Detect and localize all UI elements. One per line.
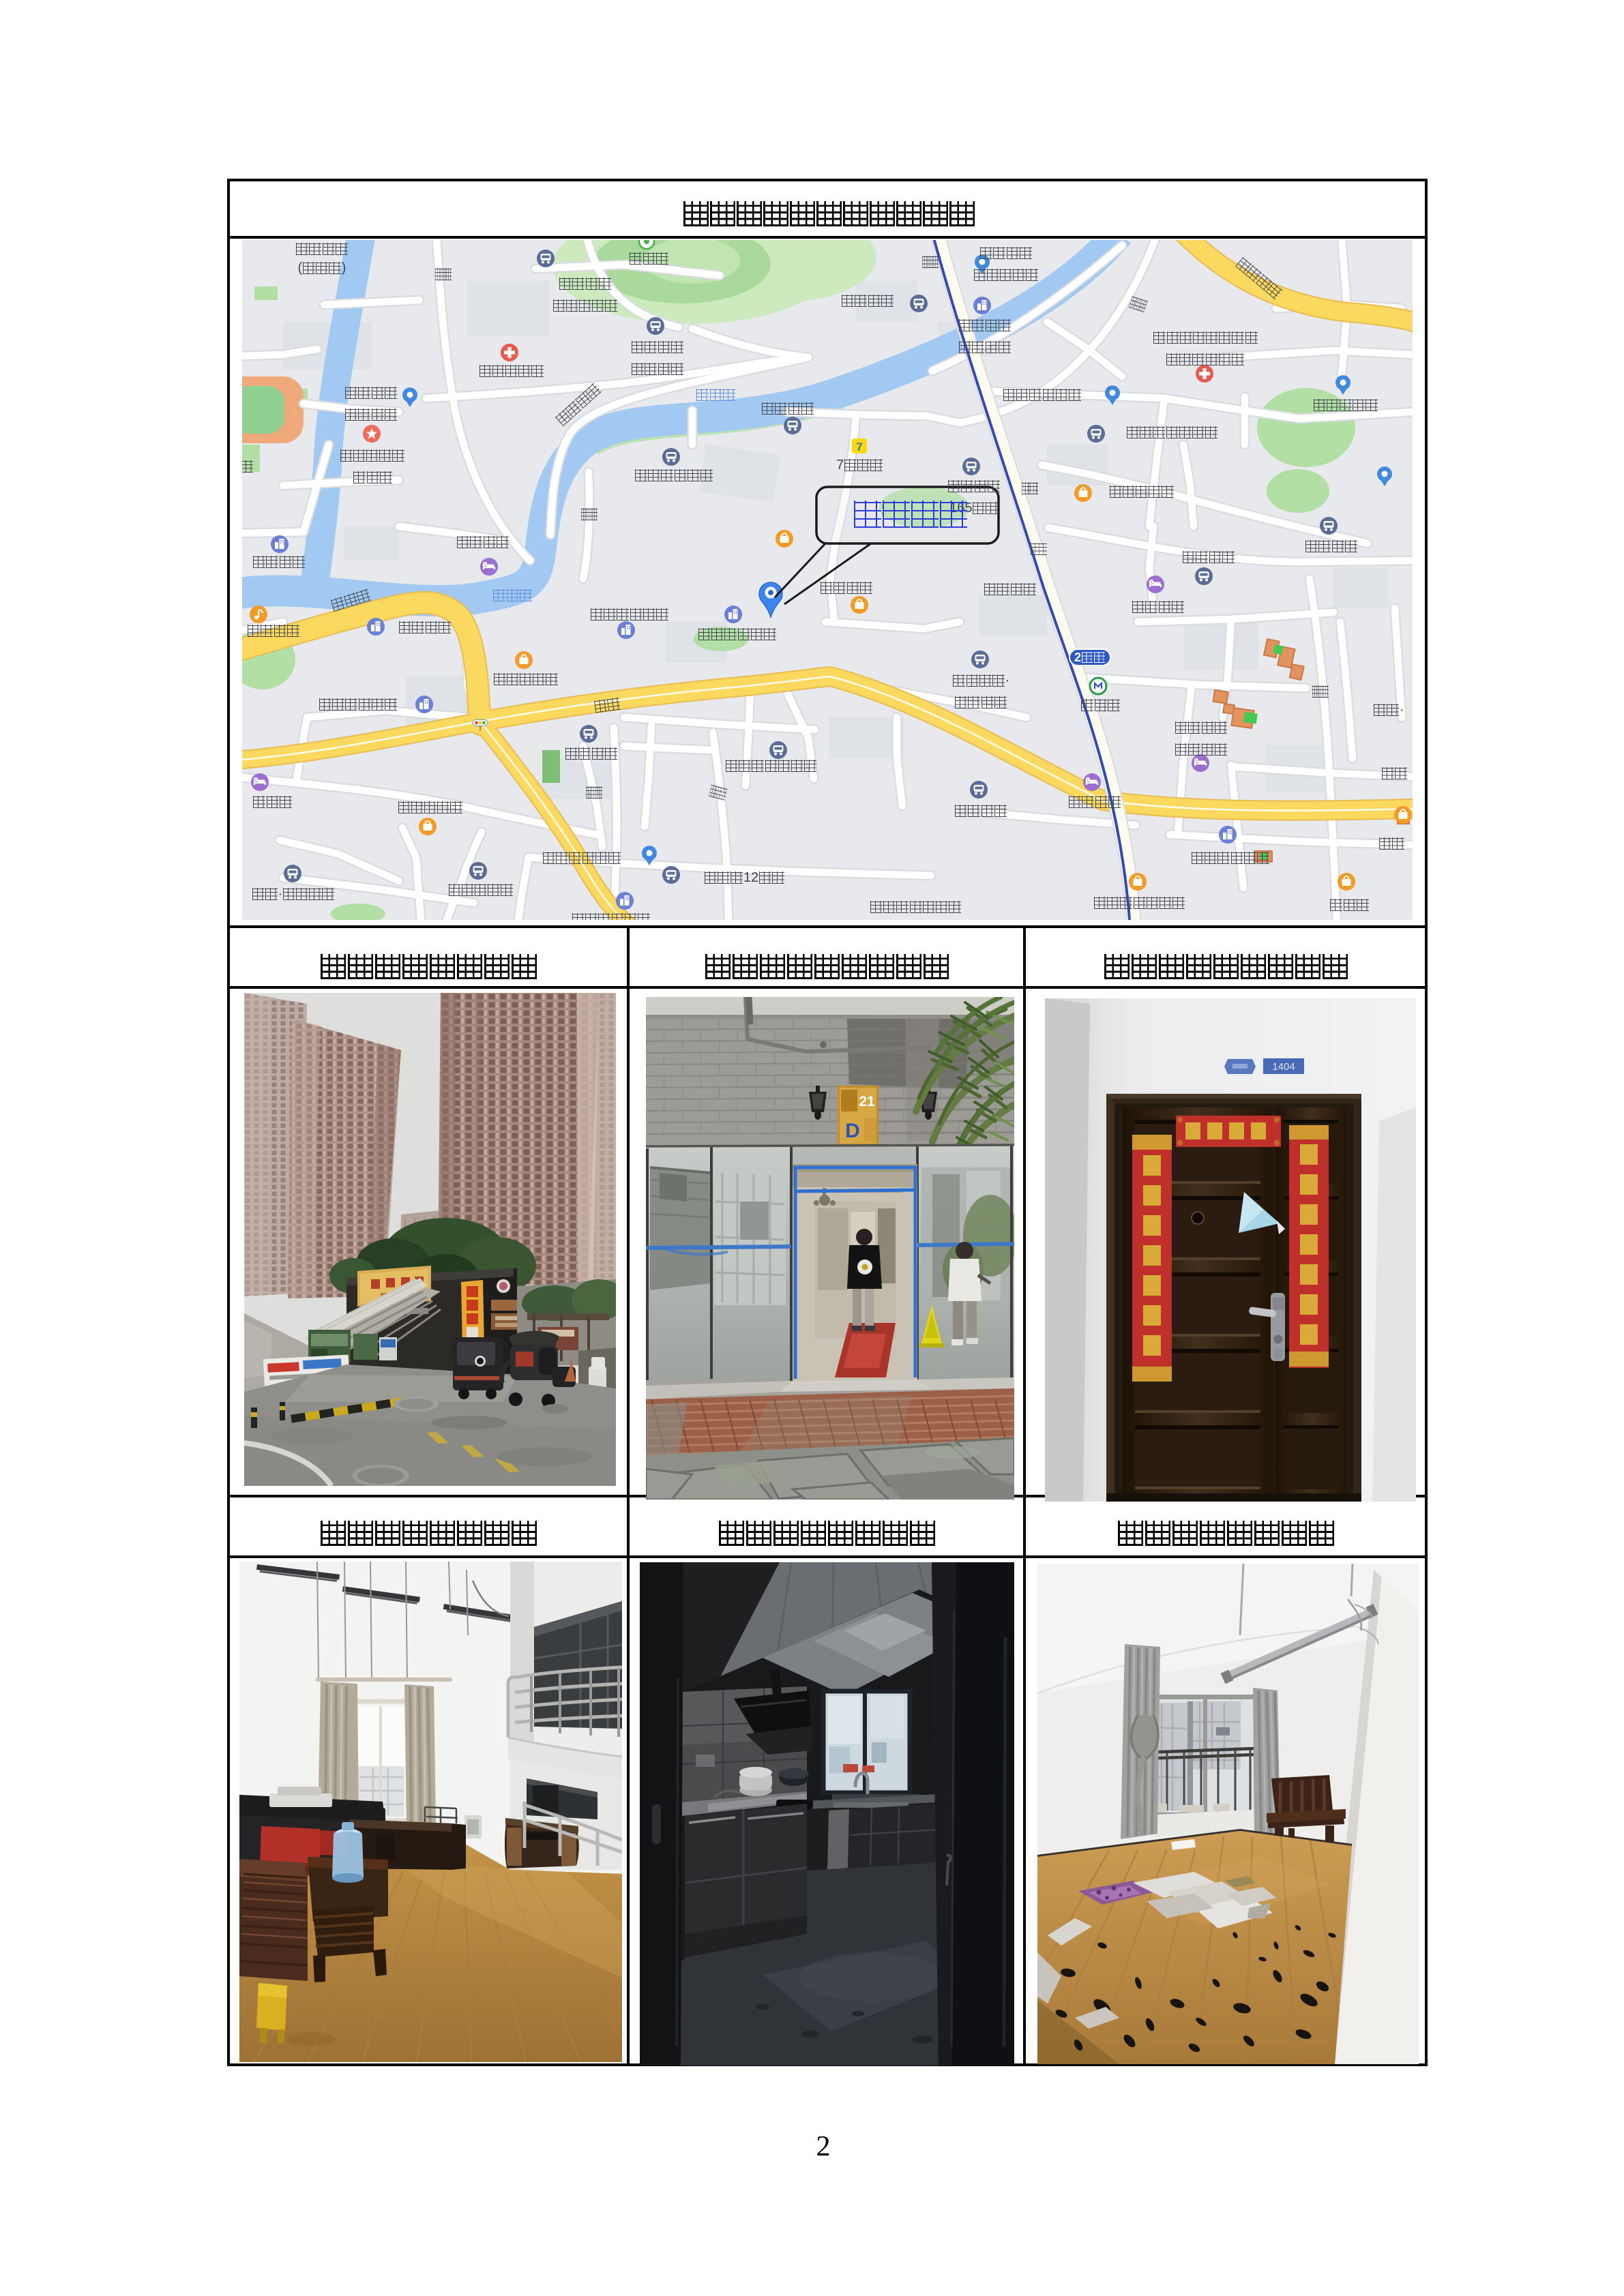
svg-text:7: 7 [856, 441, 862, 453]
svg-text:21: 21 [859, 1094, 875, 1109]
svg-text:1404: 1404 [1272, 1061, 1295, 1073]
svg-text:D: D [845, 1120, 860, 1142]
